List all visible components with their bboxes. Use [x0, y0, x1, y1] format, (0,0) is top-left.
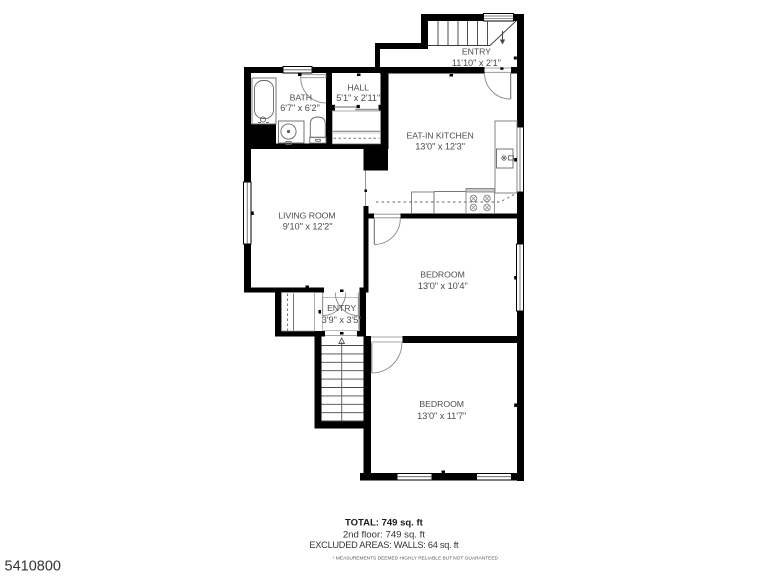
svg-text:HALL: HALL	[347, 82, 369, 92]
svg-text:BATH: BATH	[290, 93, 312, 103]
svg-text:¹ MEASUREMENTS DEEMED HIGHLY R: ¹ MEASUREMENTS DEEMED HIGHLY RELIABLE BU…	[333, 556, 499, 562]
svg-text:5'1" x 2'11": 5'1" x 2'11"	[336, 93, 380, 103]
svg-text:13'0" x 11'7": 13'0" x 11'7"	[417, 411, 466, 421]
svg-text:BEDROOM: BEDROOM	[420, 270, 465, 280]
svg-text:EAT-IN KITCHEN: EAT-IN KITCHEN	[406, 130, 473, 140]
svg-text:9'10" x 12'2": 9'10" x 12'2"	[283, 222, 333, 232]
svg-text:ENTRY: ENTRY	[462, 47, 491, 57]
svg-text:2nd floor: 749 sq. ft: 2nd floor: 749 sq. ft	[343, 529, 425, 540]
svg-text:TOTAL: 749 sq. ft: TOTAL: 749 sq. ft	[345, 518, 424, 529]
svg-text:13'0" x 12'3": 13'0" x 12'3"	[415, 142, 465, 152]
svg-text:ENTRY: ENTRY	[327, 303, 356, 313]
svg-text:LIVING ROOM: LIVING ROOM	[278, 210, 335, 220]
svg-text:6'7" x 6'2": 6'7" x 6'2"	[280, 103, 320, 113]
svg-text:EXCLUDED AREAS: WALLS: 64 sq.: EXCLUDED AREAS: WALLS: 64 sq. ft	[309, 540, 459, 550]
svg-text:13'0" x 10'4": 13'0" x 10'4"	[418, 281, 468, 291]
svg-text:BEDROOM: BEDROOM	[419, 399, 464, 409]
svg-text:5410800: 5410800	[5, 559, 61, 575]
svg-text:3'9" x 3'5": 3'9" x 3'5"	[322, 315, 362, 325]
svg-text:11'10" x 2'1": 11'10" x 2'1"	[452, 58, 501, 68]
